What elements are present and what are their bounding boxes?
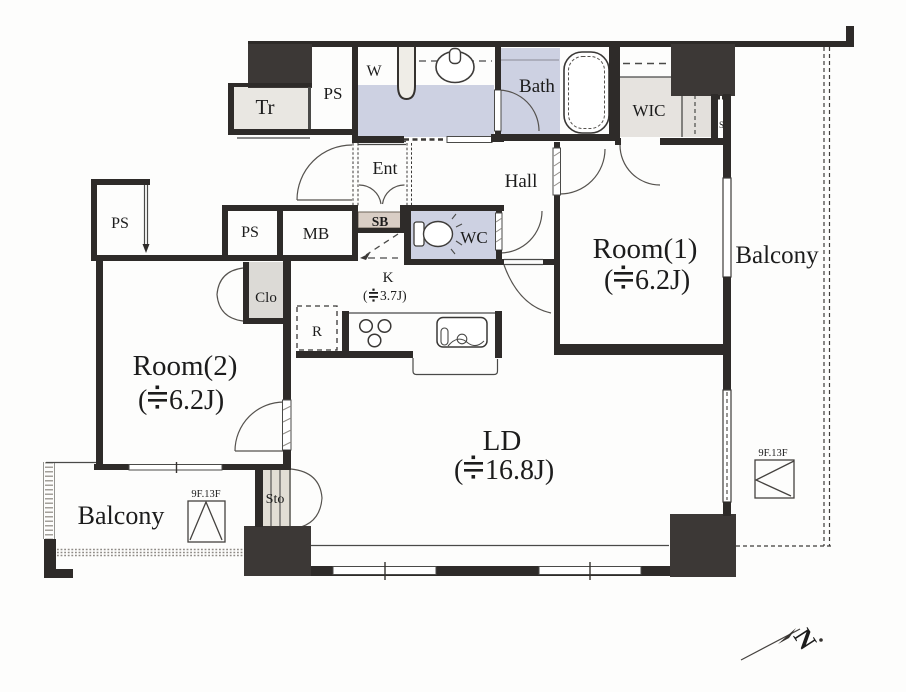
svg-text:(: ( (604, 265, 613, 296)
svg-text:9F.13F: 9F.13F (758, 448, 787, 459)
svg-text:PS: PS (324, 84, 343, 103)
svg-text:SB: SB (372, 214, 389, 229)
svg-text:K: K (383, 270, 394, 286)
svg-text:3.7J): 3.7J) (380, 288, 407, 303)
svg-text:PS: PS (241, 224, 259, 241)
svg-text:PS: PS (111, 215, 129, 232)
svg-text:6.2J): 6.2J) (169, 385, 224, 416)
svg-text:Ent: Ent (373, 158, 398, 178)
svg-text:W: W (366, 63, 382, 80)
svg-text:Room(2): Room(2) (133, 350, 238, 382)
svg-text:S: S (719, 120, 724, 130)
svg-text:R: R (312, 324, 322, 340)
svg-text:Balcony: Balcony (78, 501, 165, 530)
svg-text:6.2J): 6.2J) (635, 265, 690, 296)
svg-text:(: ( (138, 385, 147, 416)
svg-text:MB: MB (303, 224, 329, 243)
svg-text:Hall: Hall (505, 171, 538, 192)
svg-text:WC: WC (460, 228, 487, 247)
svg-text:WIC: WIC (632, 101, 665, 120)
svg-text:Room(1): Room(1) (593, 233, 698, 265)
svg-text:Clo: Clo (255, 290, 277, 306)
svg-text:Balcony: Balcony (735, 242, 819, 269)
svg-text:Bath: Bath (519, 76, 555, 97)
svg-text:16.8J): 16.8J) (485, 455, 554, 486)
svg-text:(: ( (363, 288, 368, 303)
svg-text:9F.13F: 9F.13F (191, 489, 220, 500)
svg-text:LD: LD (483, 425, 522, 457)
svg-text:(: ( (454, 455, 463, 486)
svg-text:Tr: Tr (255, 95, 274, 119)
svg-text:Sto: Sto (266, 492, 285, 507)
